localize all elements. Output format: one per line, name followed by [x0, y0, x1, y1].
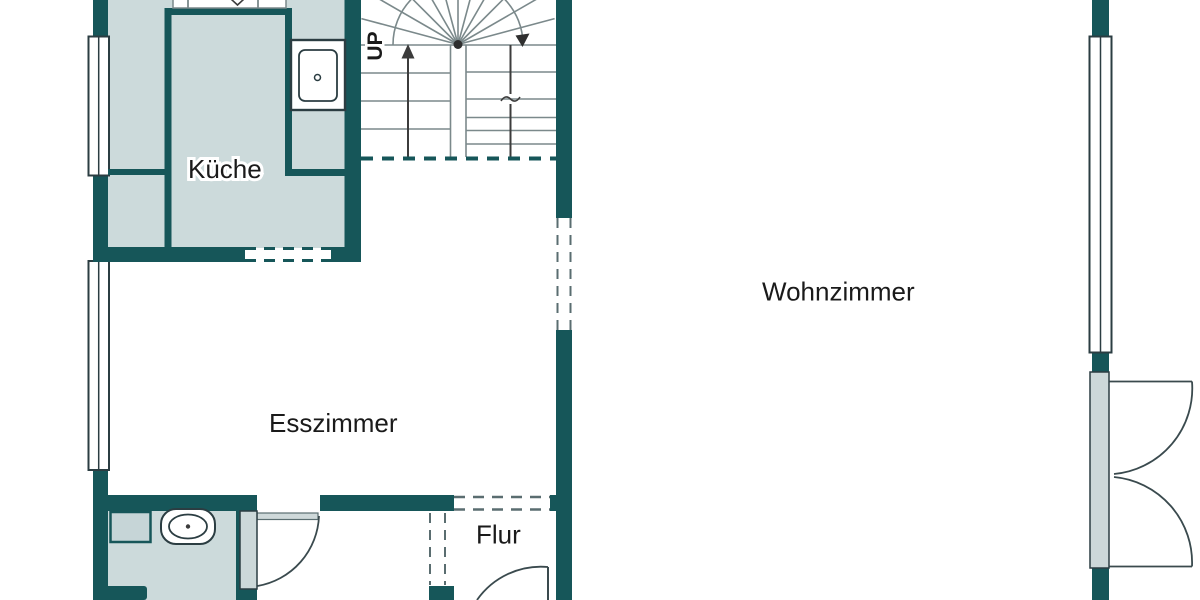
svg-text:Wohnzimmer: Wohnzimmer	[762, 277, 915, 307]
svg-text:Esszimmer: Esszimmer	[269, 408, 398, 438]
svg-text:UP: UP	[364, 31, 387, 60]
svg-text:Küche: Küche	[188, 154, 262, 184]
svg-text:Flur: Flur	[476, 520, 521, 550]
